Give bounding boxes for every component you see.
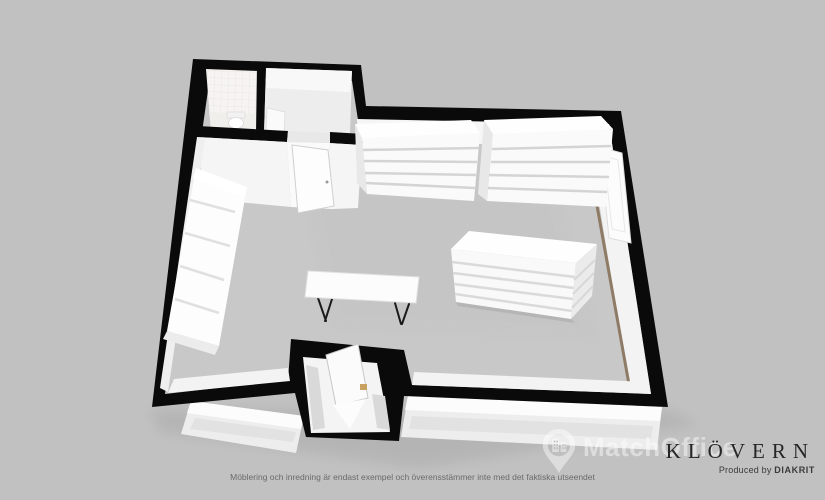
branding-block: KLÖVERN Produced by DIAKRIT [666, 441, 815, 475]
bookshelf-1 [355, 120, 480, 201]
klovern-logo: KLÖVERN [666, 441, 815, 462]
interior-door-open [292, 145, 334, 213]
entry-threshold-wood [360, 384, 367, 390]
disclaimer-text: Möblering och inredning är endast exempe… [0, 472, 825, 482]
window-left [181, 401, 304, 453]
storage-room [264, 68, 352, 134]
bathroom [206, 69, 258, 134]
bookshelf-2 [478, 116, 613, 207]
floorplan-page: MatchOffice KLÖVERN Produced by DIAKRIT … [0, 0, 825, 500]
toilet [227, 112, 245, 129]
floorplan-3d-render [0, 0, 825, 500]
